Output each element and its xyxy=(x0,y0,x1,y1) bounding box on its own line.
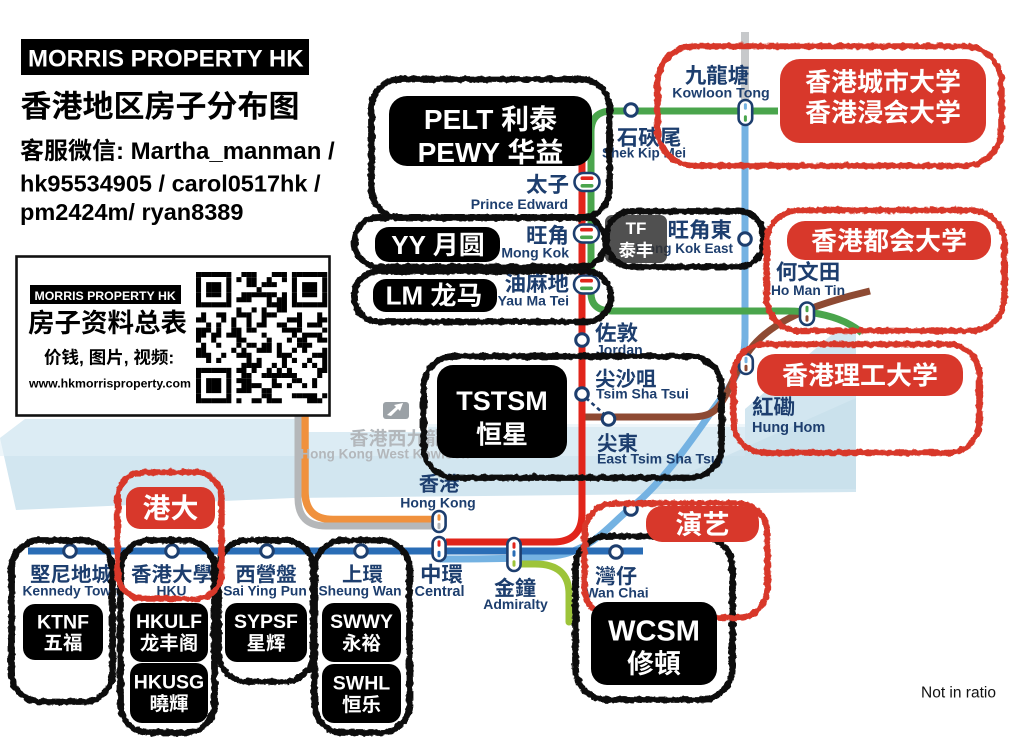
svg-text:TF: TF xyxy=(626,219,647,238)
svg-text:LM: LM xyxy=(386,281,424,311)
svg-text:HKUSG: HKUSG xyxy=(134,672,204,694)
svg-text:SWHL: SWHL xyxy=(333,673,390,695)
svg-text:Mong Kok: Mong Kok xyxy=(501,245,569,261)
svg-text:Yau Ma Tei: Yau Ma Tei xyxy=(498,293,569,309)
svg-text:Admiralty: Admiralty xyxy=(483,596,548,612)
svg-text:Wan Chai: Wan Chai xyxy=(585,585,648,601)
svg-text:,: , xyxy=(124,348,129,368)
svg-text:Sheung Wan: Sheung Wan xyxy=(318,584,401,599)
svg-text:Central: Central xyxy=(415,584,465,600)
svg-text:: Martha_manman /: : Martha_manman / xyxy=(116,138,335,165)
svg-text:TSTSM: TSTSM xyxy=(456,386,548,416)
svg-text:Hong Kong: Hong Kong xyxy=(400,495,475,511)
svg-text:Prince Edward: Prince Edward xyxy=(471,196,568,212)
svg-text:MORRIS PROPERTY HK: MORRIS PROPERTY HK xyxy=(35,289,176,303)
svg-text:SYPSF: SYPSF xyxy=(234,611,298,633)
svg-text:www.hkmorrisproperty.com: www.hkmorrisproperty.com xyxy=(28,377,191,391)
svg-text:PEWY: PEWY xyxy=(418,137,501,168)
svg-text:Hung Hom: Hung Hom xyxy=(752,420,825,436)
svg-text:SWWY: SWWY xyxy=(330,611,393,633)
svg-text:Ho Man Tin: Ho Man Tin xyxy=(771,283,845,298)
svg-text:PELT: PELT xyxy=(424,104,493,135)
svg-text:,: , xyxy=(79,348,84,368)
svg-text:pm2424m/ ryan8389: pm2424m/ ryan8389 xyxy=(20,199,243,225)
svg-text:YY: YY xyxy=(391,230,426,260)
svg-text:Sai Ying Pun: Sai Ying Pun xyxy=(223,584,307,599)
svg-text:KTNF: KTNF xyxy=(37,612,89,634)
svg-text:MORRIS PROPERTY HK: MORRIS PROPERTY HK xyxy=(28,46,304,73)
svg-text:WCSM: WCSM xyxy=(608,616,700,648)
svg-text:Not in ratio: Not in ratio xyxy=(921,685,996,702)
svg-text:Kennedy Town: Kennedy Town xyxy=(22,584,119,599)
svg-text:hk95534905 / carol0517hk /: hk95534905 / carol0517hk / xyxy=(20,171,321,197)
svg-text:HKULF: HKULF xyxy=(136,611,202,633)
svg-text::: : xyxy=(168,348,174,368)
svg-text:Tsim Sha Tsui: Tsim Sha Tsui xyxy=(596,386,689,402)
svg-text:East Tsim Sha Tsui: East Tsim Sha Tsui xyxy=(597,451,723,467)
svg-text:Kowloon Tong: Kowloon Tong xyxy=(672,86,769,102)
